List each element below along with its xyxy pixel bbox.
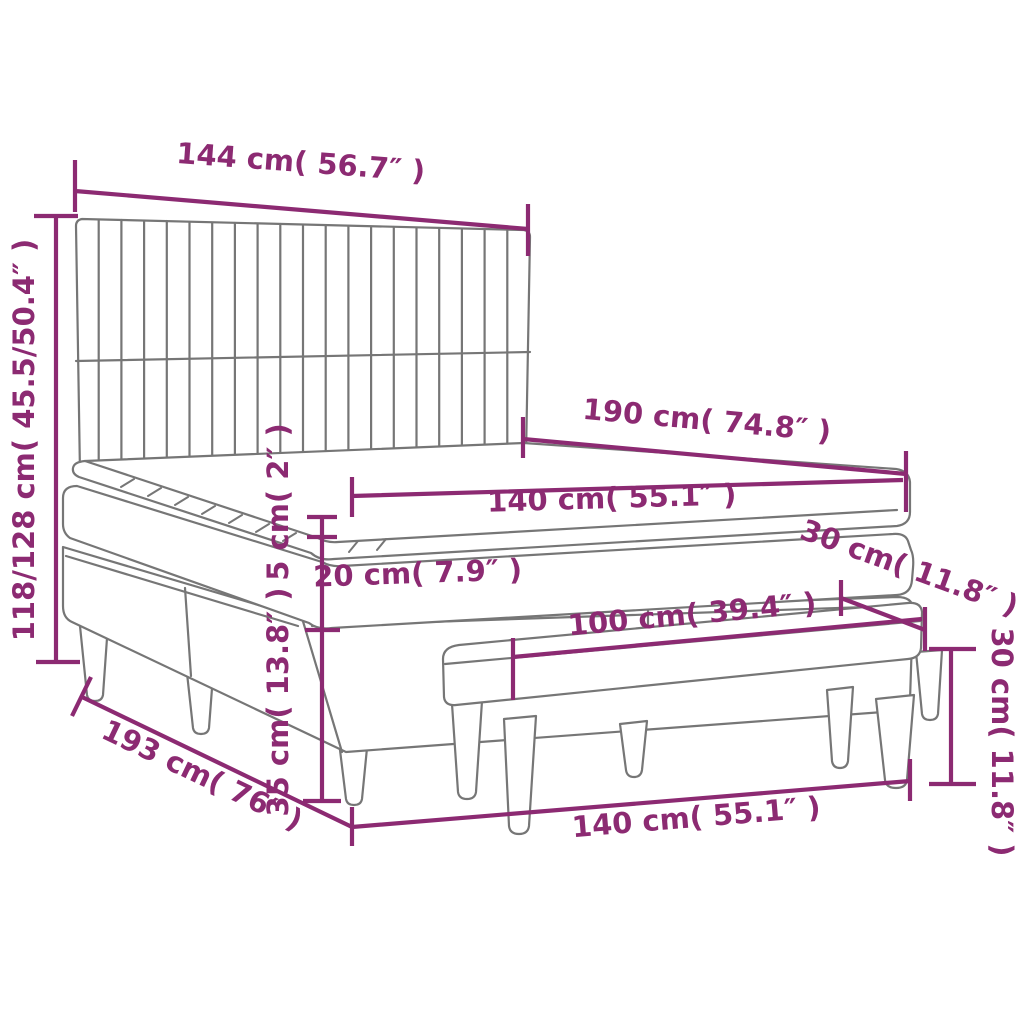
diagram-canvas: 144 cm( 56.7″ ) 118/128 cm( 45.5/50.4″ )… (0, 0, 1024, 1024)
label-base-height: 35 cm( 13.8″ ) (261, 587, 295, 816)
label-mattress-height: 20 cm( 7.9″ ) (313, 552, 523, 593)
bed-dimension-diagram: 144 cm( 56.7″ ) 118/128 cm( 45.5/50.4″ )… (0, 0, 1024, 1024)
label-headboard-height: 118/128 cm( 45.5/50.4″ ) (7, 239, 41, 642)
bench-leg (827, 687, 853, 768)
headboard (76, 219, 530, 473)
label-topper-height: 5 cm( 2″ ) (261, 423, 295, 581)
bench-leg (452, 701, 482, 799)
label-bench-height: 30 cm( 11.8″ ) (985, 627, 1019, 856)
